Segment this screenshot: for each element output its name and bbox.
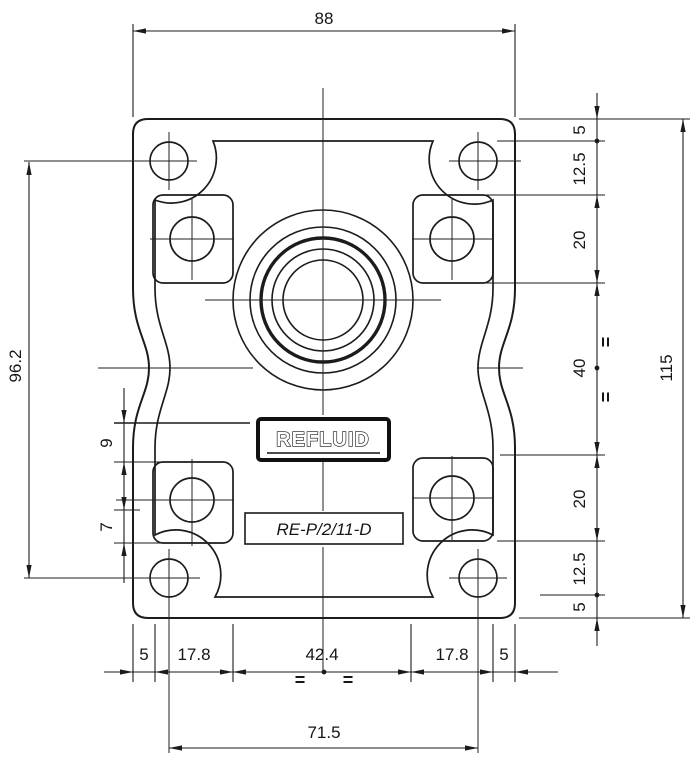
dim-label-88: 88: [315, 9, 334, 28]
dim-label-right-20-bottom: 20: [570, 490, 589, 509]
dim-label-bottom-5-right: 5: [499, 645, 508, 664]
dim-label-71.5: 71.5: [307, 723, 340, 742]
dim-left-span: 96.2: [6, 162, 32, 578]
logo-text: REFLUID: [276, 429, 370, 451]
equal-mark-bottom-right: =: [343, 670, 354, 690]
dim-label-bottom-42.4: 42.4: [305, 645, 338, 664]
dim-label-115: 115: [657, 354, 676, 381]
dim-label-right-12.5-top: 12.5: [570, 152, 589, 185]
dim-label-right-5-top: 5: [570, 125, 589, 134]
logo-plate: REFLUID: [258, 419, 389, 460]
dim-label-bottom-5-left: 5: [139, 645, 148, 664]
dim-label-7: 7: [97, 522, 116, 531]
dim-bottom-total: 71.5: [169, 723, 478, 751]
model-label: RE-P/2/11-D: [245, 513, 403, 544]
dim-label-9: 9: [97, 438, 116, 447]
dim-label-bottom-17.8-right: 17.8: [435, 645, 468, 664]
dim-label-right-20-top: 20: [570, 231, 589, 250]
model-label-text: RE-P/2/11-D: [276, 520, 371, 539]
equal-mark-right-lower: =: [596, 392, 616, 403]
pocket-bottom-right: [413, 458, 493, 541]
dim-label-right-5-bottom: 5: [570, 602, 589, 611]
equal-mark-right-upper: =: [596, 337, 616, 348]
dim-right-total: 115: [657, 119, 686, 618]
dim-label-96.2: 96.2: [6, 349, 25, 382]
dim-top-width: 88: [133, 9, 515, 117]
flange-drawing-svg: 88 5 12.5 20 40 20 12.5 5 =: [0, 0, 700, 759]
equal-mark-bottom-left: =: [295, 670, 306, 690]
dim-label-bottom-17.8-left: 17.8: [177, 645, 210, 664]
dim-label-right-40: 40: [570, 359, 589, 378]
dim-bottom-chain: 5 17.8 42.4 17.8 5 = =: [104, 624, 558, 690]
drawing-canvas: 88 5 12.5 20 40 20 12.5 5 =: [0, 0, 700, 759]
dim-label-right-12.5-bottom: 12.5: [570, 552, 589, 585]
